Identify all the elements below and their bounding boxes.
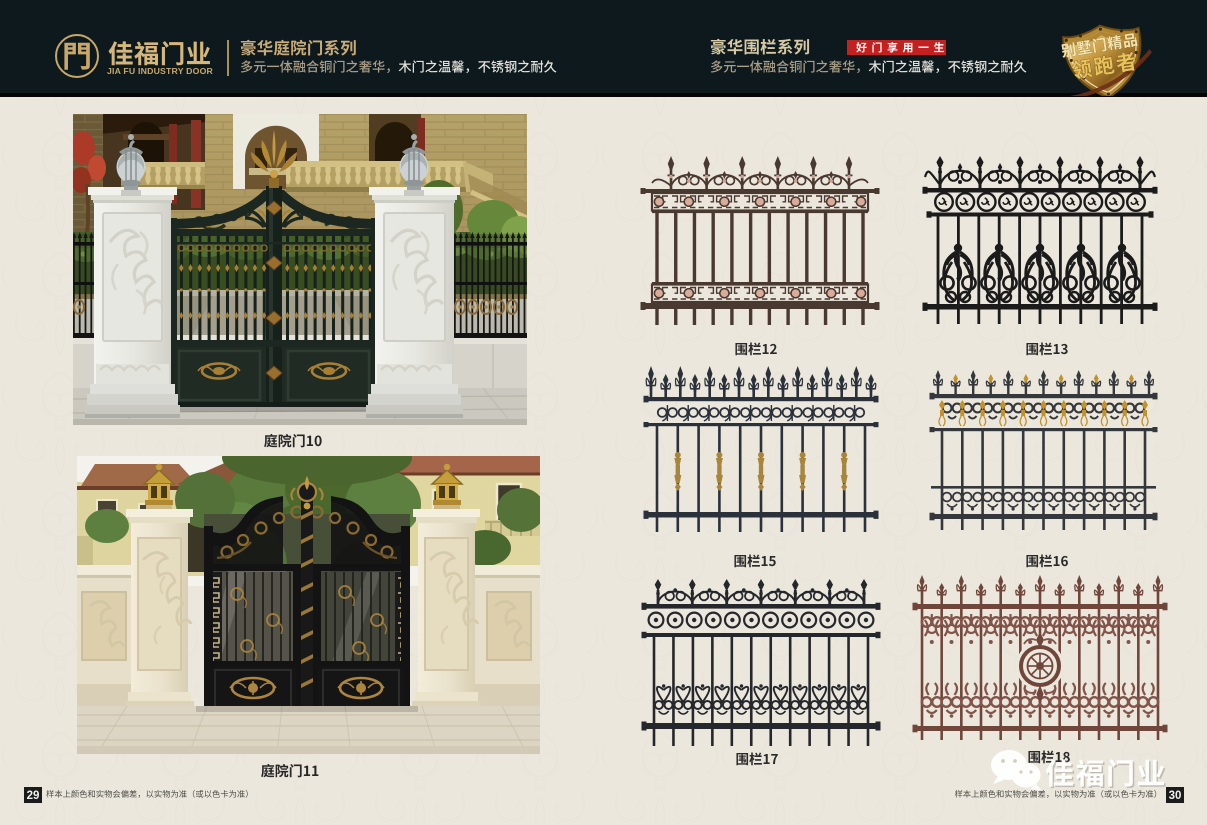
svg-text:29: 29 — [27, 790, 40, 802]
svg-text:30: 30 — [1169, 790, 1182, 802]
